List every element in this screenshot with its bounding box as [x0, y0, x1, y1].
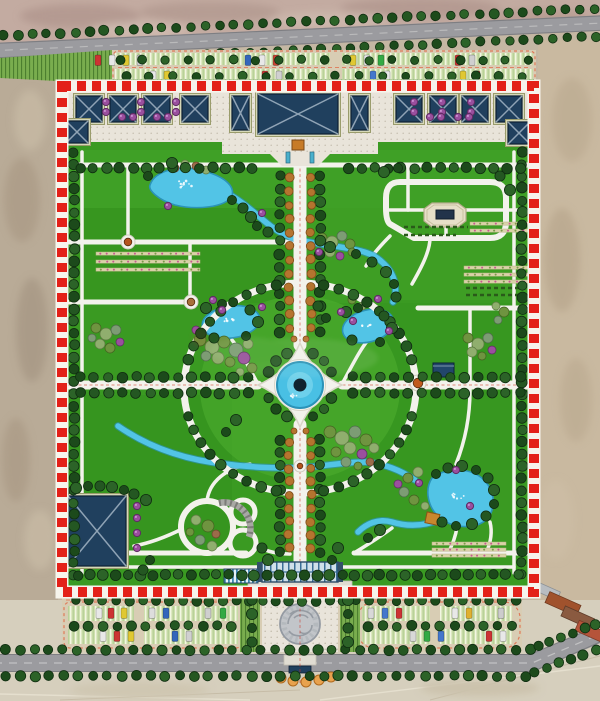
orange-tree-icon [286, 517, 294, 525]
tree-icon [436, 163, 446, 173]
tree-icon [205, 449, 215, 459]
flower-dot [106, 261, 108, 263]
tree-icon [445, 388, 455, 398]
tree-icon [132, 372, 142, 382]
flower-dot [509, 281, 511, 283]
bush-icon [452, 466, 459, 473]
flower-dot [148, 253, 150, 255]
tree-icon [516, 388, 526, 398]
orange-tree-icon [307, 269, 316, 278]
tree-icon [316, 16, 325, 25]
flower-dot [436, 549, 438, 551]
tree-icon [517, 413, 528, 424]
tree-icon [275, 448, 285, 458]
tree-icon [169, 72, 177, 80]
tree-icon [472, 388, 483, 399]
car-icon [149, 608, 155, 619]
tree-icon [357, 164, 367, 174]
tree-icon [85, 569, 95, 579]
tree-icon [189, 672, 199, 682]
tree-icon [104, 388, 114, 398]
shrub-icon [105, 343, 115, 353]
tree-icon [459, 372, 470, 383]
tree-icon [327, 555, 336, 564]
tree-icon [104, 373, 113, 382]
tree-icon [101, 645, 111, 655]
flower-dot [501, 230, 503, 232]
tree-icon [385, 450, 394, 459]
bush-icon [133, 502, 140, 509]
tree-icon [533, 6, 542, 15]
tree-icon [69, 621, 79, 631]
tree-icon [468, 644, 478, 654]
flower-dot [197, 253, 199, 255]
tree-icon [333, 670, 343, 680]
tree-icon [459, 9, 468, 18]
tree-icon [123, 570, 132, 579]
flower-dot [163, 261, 165, 263]
sparkle-dot [292, 393, 294, 395]
flower-dot [155, 261, 157, 263]
tree-icon [351, 249, 360, 258]
car-icon [186, 631, 192, 642]
flower-dot [489, 274, 491, 276]
tree-icon [463, 569, 473, 579]
tree-icon [496, 644, 506, 654]
tree-icon [443, 463, 453, 473]
orange-tree-icon [306, 214, 315, 223]
shrub-icon [499, 307, 509, 317]
shrub-icon [186, 528, 194, 536]
tree-icon [158, 372, 169, 383]
tree-icon [320, 672, 329, 681]
bush-icon [172, 98, 179, 105]
shrub-icon [191, 515, 201, 525]
tree-icon [316, 523, 325, 532]
tree-icon [256, 645, 265, 654]
tree-icon [173, 389, 183, 399]
bush-icon [102, 108, 109, 115]
flower-dot [468, 267, 470, 269]
tree-icon [362, 469, 372, 479]
tree-icon [68, 171, 79, 182]
bush-highlight [469, 110, 471, 112]
tree-icon [488, 484, 499, 495]
tree-icon [301, 16, 311, 26]
bush-highlight [166, 115, 168, 117]
flower-dot [162, 269, 164, 271]
flower-dot [510, 274, 512, 276]
flower-dot [489, 267, 491, 269]
tree-icon [221, 427, 230, 436]
tree-icon [368, 644, 378, 654]
orange-tree-icon [284, 451, 292, 459]
flower-dot [156, 269, 158, 271]
gate-kiosk [292, 140, 304, 150]
tree-icon [189, 425, 199, 435]
tree-icon [224, 569, 234, 579]
bush-icon [164, 202, 171, 209]
tree-icon [401, 425, 411, 435]
tree-icon [102, 671, 111, 680]
tree-icon [518, 305, 528, 315]
tree-icon [230, 414, 241, 425]
orange-tree-icon [307, 464, 315, 472]
tree-icon [516, 371, 527, 382]
tree-icon [264, 393, 273, 402]
sparkle-dot [369, 324, 371, 326]
car-icon [114, 631, 120, 642]
tree-icon [318, 486, 328, 496]
tree-icon [360, 372, 371, 383]
tree-icon [393, 163, 402, 172]
tree-icon [355, 71, 363, 79]
tree-icon [68, 352, 79, 363]
tree-icon [174, 373, 183, 382]
tree-icon [392, 671, 401, 680]
tree-icon [89, 373, 99, 383]
tree-icon [516, 316, 527, 327]
tree-icon [434, 55, 442, 63]
tree-icon [206, 56, 214, 64]
tree-icon [374, 459, 385, 470]
tree-icon [362, 297, 372, 307]
sparkle-dot [463, 495, 465, 497]
tree-icon [575, 5, 584, 14]
tree-icon [500, 372, 510, 382]
sparkle-dot [188, 183, 190, 185]
tree-icon [102, 163, 113, 174]
tree-icon [275, 223, 285, 233]
tree-icon [275, 184, 285, 194]
flower-dot [436, 555, 438, 557]
bush-highlight [454, 468, 456, 470]
tree-icon [353, 303, 362, 312]
tree-icon [479, 621, 488, 630]
shrub-icon [354, 462, 362, 470]
tree-icon [115, 26, 124, 35]
tree-icon [173, 569, 183, 579]
bush-icon [258, 209, 265, 216]
tree-icon [590, 620, 600, 630]
shrub-icon [394, 480, 402, 488]
tree-icon [68, 267, 79, 278]
tree-icon [198, 621, 208, 631]
tree-icon [389, 279, 398, 288]
tree-icon [208, 162, 218, 172]
flower-dot [486, 223, 488, 225]
tree-icon [0, 644, 10, 654]
car-icon [410, 631, 416, 642]
tree-icon [30, 645, 39, 654]
tree-icon [561, 5, 570, 14]
flower-dot [497, 549, 499, 551]
tree-icon [506, 672, 516, 682]
tree-icon [363, 533, 372, 542]
flower-dot [470, 543, 472, 545]
tree-icon [412, 570, 422, 580]
tree-icon [388, 56, 396, 64]
tree-icon [319, 404, 328, 413]
tree-icon [113, 622, 122, 631]
bush-icon [410, 98, 417, 105]
bush-highlight [260, 211, 262, 213]
tree-icon [435, 621, 445, 631]
tree-icon [418, 372, 427, 381]
flower-dot [184, 261, 186, 263]
tree-icon [234, 162, 245, 173]
tree-icon [556, 633, 565, 642]
tree-icon [375, 387, 385, 397]
flower-dot [476, 543, 478, 545]
tree-icon [262, 672, 272, 682]
tree-icon [75, 372, 85, 382]
tree-icon [245, 305, 255, 315]
tree-icon [407, 355, 417, 365]
flower-dot [98, 261, 100, 263]
tree-icon [227, 646, 236, 655]
flower-dot [190, 261, 192, 263]
shrub-icon [336, 252, 344, 260]
tree-icon [256, 284, 266, 294]
tree-icon [286, 17, 296, 27]
tree-icon [345, 15, 355, 25]
tree-icon [70, 340, 80, 350]
path-node-center [124, 238, 132, 246]
tree-icon [487, 388, 497, 398]
flower-dot [464, 543, 466, 545]
flower-dot [99, 253, 101, 255]
flower-dot [161, 253, 163, 255]
tree-icon [97, 569, 108, 580]
flower-dot [197, 269, 199, 271]
flower-dot [141, 269, 143, 271]
flower-dot [100, 269, 102, 271]
bush-highlight [135, 504, 137, 506]
tree-icon [262, 73, 270, 81]
tree-icon [504, 184, 515, 195]
tree-icon [218, 672, 227, 681]
tree-icon [375, 337, 384, 346]
bush-highlight [166, 204, 168, 206]
tree-icon [315, 548, 325, 558]
tree-icon [69, 534, 80, 545]
tree-icon [392, 622, 401, 631]
flower-dot [141, 253, 143, 255]
tree-icon [196, 438, 206, 448]
flower-dot [120, 253, 122, 255]
tree-icon [145, 555, 154, 564]
flower-dot [471, 549, 473, 551]
tree-icon [516, 163, 526, 173]
flower-dot [509, 267, 511, 269]
tree-icon [69, 219, 80, 230]
tree-icon [176, 671, 185, 680]
bush-highlight [468, 504, 470, 506]
bush-highlight [139, 110, 141, 112]
tree-icon [359, 14, 368, 23]
bush-highlight [220, 308, 222, 310]
tree-icon [516, 473, 526, 483]
tree-icon [563, 33, 572, 42]
tree-icon [456, 56, 465, 65]
tree-icon [129, 25, 139, 35]
flower-dot [190, 253, 192, 255]
flower-dot [182, 269, 184, 271]
tree-icon [110, 570, 121, 581]
sparkle-dot [183, 182, 185, 184]
car-icon [163, 608, 169, 619]
tree-icon [70, 208, 79, 217]
tree-icon [70, 482, 81, 493]
flower-dot [491, 555, 493, 557]
tree-icon [70, 546, 80, 556]
tree-icon [186, 570, 196, 580]
tree-icon [334, 284, 344, 294]
tree-icon [274, 327, 285, 338]
tree-icon [517, 533, 528, 544]
tree-icon [275, 56, 283, 64]
bush-icon [172, 108, 179, 115]
flower-dot [182, 253, 184, 255]
tree-icon [449, 163, 458, 172]
car-icon [100, 631, 106, 642]
flower-dot [479, 223, 481, 225]
tree-icon [214, 388, 224, 398]
flower-strip-row [96, 268, 200, 271]
tree-icon [315, 327, 325, 337]
tree-icon [348, 388, 358, 398]
tree-icon [450, 671, 459, 680]
sparkle-dot [452, 493, 454, 495]
bush-icon [349, 317, 356, 324]
flower-dot [482, 274, 484, 276]
tree-icon [342, 636, 353, 647]
tree-icon [578, 650, 588, 660]
tree-icon [299, 645, 309, 655]
stage-structure [436, 210, 454, 219]
tree-icon [327, 645, 336, 654]
tree-icon [313, 301, 323, 311]
orange-tree-icon [307, 282, 315, 290]
flower-dot [442, 543, 444, 545]
orange-tree-icon [306, 228, 314, 236]
tree-icon [517, 206, 528, 217]
tree-icon [69, 449, 79, 459]
tree-icon [275, 197, 285, 207]
orange-tree-icon [285, 543, 294, 552]
tree-icon [142, 645, 152, 655]
car-icon [466, 608, 472, 619]
tree-icon [590, 5, 599, 14]
tree-icon [489, 9, 499, 19]
tree-icon [343, 623, 353, 633]
car-icon [205, 608, 211, 619]
tree-icon [493, 621, 502, 630]
orange-tree-icon [307, 490, 316, 499]
shrub-icon [195, 535, 205, 545]
orange-tree-icon [285, 214, 294, 223]
tree-icon [228, 469, 237, 478]
tree-icon [348, 476, 359, 487]
bush-icon [454, 113, 461, 120]
tree-icon [275, 547, 284, 556]
tree-icon [517, 328, 527, 338]
tree-icon [500, 569, 510, 579]
bush-highlight [428, 115, 430, 117]
flower-dot [498, 555, 500, 557]
tree-icon [446, 11, 455, 20]
orange-tree-icon [284, 465, 293, 474]
tree-icon [258, 19, 267, 28]
tree-icon [402, 72, 410, 80]
building [349, 94, 371, 133]
bush-icon [385, 327, 392, 334]
sparkle-dot [361, 324, 363, 326]
flower-dot [490, 543, 492, 545]
flower-strip-row [432, 554, 506, 557]
orange-tree-icon [307, 324, 315, 332]
bush-icon [164, 113, 171, 120]
tree-icon [185, 646, 195, 656]
shrub-icon [421, 502, 429, 510]
tree-icon [69, 304, 80, 315]
shrub-icon [111, 325, 121, 335]
tree-icon [69, 521, 80, 532]
tree-icon [73, 571, 83, 581]
bush-highlight [131, 115, 133, 117]
orange-tree-icon [285, 229, 294, 238]
tree-icon [180, 162, 190, 172]
orange-tree-icon [284, 504, 292, 512]
tree-icon [69, 183, 79, 193]
tree-icon [475, 10, 484, 19]
flower-dot [176, 269, 178, 271]
tree-icon [0, 30, 8, 40]
gate-post [286, 152, 290, 163]
shrub-icon [488, 346, 496, 354]
tree-icon [89, 388, 99, 398]
flower-dot [135, 269, 137, 271]
flower-dot [481, 267, 483, 269]
tree-icon [370, 163, 379, 172]
tree-icon [276, 171, 285, 180]
tree-icon [226, 622, 236, 632]
flower-dot [456, 555, 458, 557]
shrub-icon [341, 457, 351, 467]
sparkle-dot [292, 396, 294, 398]
tree-icon [59, 670, 69, 680]
tree-icon [144, 373, 154, 383]
tree-icon [69, 558, 78, 567]
flower-dot [107, 269, 109, 271]
flower-dot [154, 253, 156, 255]
flower-dot [121, 269, 123, 271]
orange-tree-icon [285, 477, 294, 486]
flower-dot [441, 555, 443, 557]
flower-dot [135, 261, 137, 263]
sparkle-dot [185, 180, 188, 183]
tree-icon [251, 57, 259, 65]
tree-icon [256, 481, 267, 492]
tree-icon [315, 534, 326, 545]
bush-icon [133, 514, 140, 521]
car-icon [95, 55, 101, 66]
tree-icon [117, 671, 127, 681]
tree-icon [422, 162, 432, 172]
tree-icon [69, 499, 79, 509]
bush-icon [118, 113, 125, 120]
